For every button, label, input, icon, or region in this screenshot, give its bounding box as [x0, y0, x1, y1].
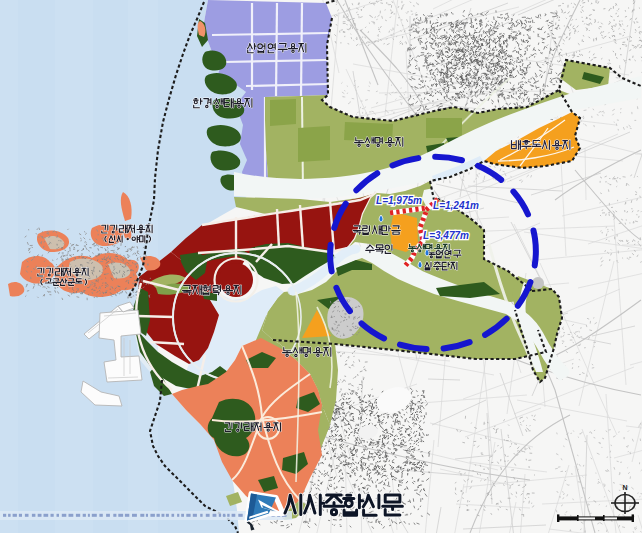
svg-text:L=1,241m: L=1,241m	[433, 200, 479, 211]
svg-text:L=1,975m: L=1,975m	[376, 195, 422, 206]
svg-text:N: N	[622, 484, 627, 491]
svg-text:L=3,477m: L=3,477m	[423, 230, 469, 241]
